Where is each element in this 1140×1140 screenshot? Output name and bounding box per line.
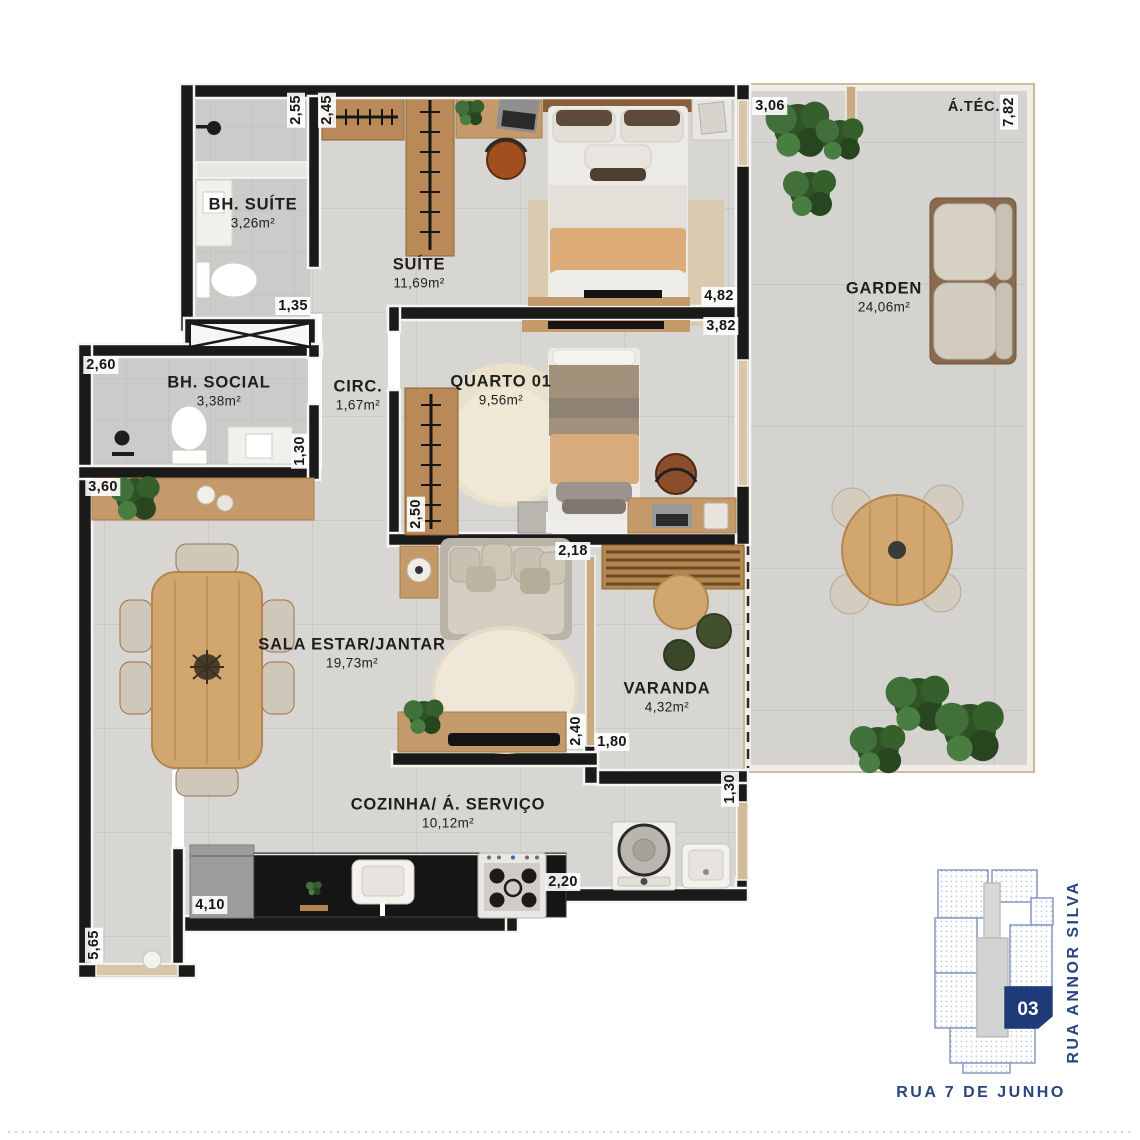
dim-2-20: 2,20 <box>545 873 580 891</box>
dim-4-10: 4,10 <box>192 896 227 914</box>
dim-5-65: 5,65 <box>85 927 103 962</box>
room-area: 3,26m² <box>209 216 298 231</box>
dim-1-35: 1,35 <box>275 297 310 315</box>
keyplan-unit-number: 03 <box>1017 999 1038 1020</box>
sala-sofa <box>440 538 572 640</box>
sala-side-table-lamp <box>400 546 438 598</box>
sala-console <box>92 476 314 520</box>
room-label-bh-social: BH. SOCIAL 3,38m² <box>167 374 270 409</box>
room-area: 11,69m² <box>393 276 446 291</box>
dim-3-82: 3,82 <box>703 317 738 335</box>
dim-2-18: 2,18 <box>555 542 590 560</box>
dim-2-50: 2,50 <box>407 496 425 531</box>
street-label-rua-7-de-junho: RUA 7 DE JUNHO <box>896 1084 1066 1102</box>
room-area: 3,38m² <box>167 394 270 409</box>
floorplan-graphic: 03 <box>0 0 1140 1140</box>
room-name: SALA ESTAR/JANTAR <box>258 636 445 655</box>
room-area: 10,12m² <box>351 816 546 831</box>
room-name: COZINHA/ Á. SERVIÇO <box>351 796 546 815</box>
dim-2-60: 2,60 <box>83 356 118 374</box>
room-label-sala: SALA ESTAR/JANTAR 19,73m² <box>258 636 445 671</box>
room-label-garden: GARDEN 24,06m² <box>846 280 922 315</box>
room-name: QUARTO 01 <box>450 373 551 392</box>
pocket-basin <box>143 951 161 969</box>
room-label-suite: SUÍTE 11,69m² <box>393 256 446 291</box>
floorplan-page: 03 BH. SUÍTE 3,26m² SUÍTE 11,69m² BH. SO… <box>0 0 1140 1140</box>
dim-3-60: 3,60 <box>85 478 120 496</box>
room-area: 9,56m² <box>450 393 551 408</box>
room-area: 1,67m² <box>334 398 383 413</box>
keyplan-building <box>935 870 1053 1073</box>
dim-3-06: 3,06 <box>752 97 787 115</box>
dim-7-82: 7,82 <box>1000 94 1018 129</box>
dim-2-40: 2,40 <box>567 713 585 748</box>
room-label-bh-suite: BH. SUÍTE 3,26m² <box>209 196 298 231</box>
dim-1-30-varanda: 1,30 <box>721 771 739 806</box>
room-name: VARANDA <box>624 680 711 699</box>
room-name: CIRC. <box>334 378 383 397</box>
room-area: 24,06m² <box>846 300 922 315</box>
room-name: SUÍTE <box>393 256 446 275</box>
room-label-quarto01: QUARTO 01 9,56m² <box>450 373 551 408</box>
ventilation-shaft <box>190 323 310 347</box>
room-label-atec: Á.TÉC. <box>948 99 1000 115</box>
room-area: 19,73m² <box>258 656 445 671</box>
room-name: BH. SOCIAL <box>167 374 270 393</box>
room-label-cozinha: COZINHA/ Á. SERVIÇO 10,12m² <box>351 796 546 831</box>
dim-4-82: 4,82 <box>701 287 736 305</box>
street-label-rua-annor-silva: RUA ANNOR SILVA <box>1065 880 1083 1063</box>
room-name: GARDEN <box>846 280 922 299</box>
dim-2-55: 2,55 <box>287 92 305 127</box>
room-area: 4,32m² <box>624 700 711 715</box>
room-label-varanda: VARANDA 4,32m² <box>624 680 711 715</box>
room-name: BH. SUÍTE <box>209 196 298 215</box>
room-label-circ: CIRC. 1,67m² <box>334 378 383 413</box>
dim-1-80: 1,80 <box>594 733 629 751</box>
dim-1-30-bh: 1,30 <box>291 433 309 468</box>
dim-2-45: 2,45 <box>318 92 336 127</box>
room-name: Á.TÉC. <box>948 99 1000 115</box>
